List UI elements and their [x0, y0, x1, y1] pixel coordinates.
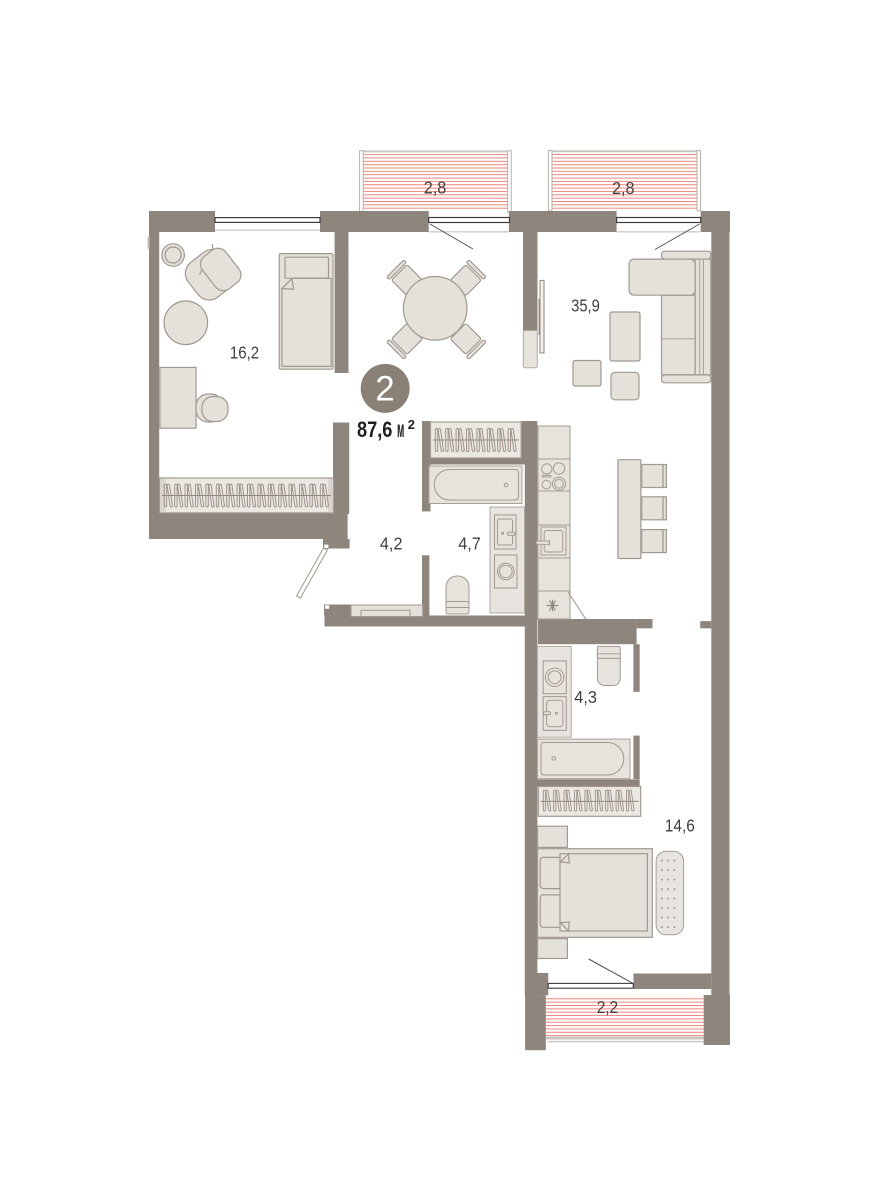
svg-text:35,9: 35,9 — [571, 295, 600, 315]
svg-text:14,6: 14,6 — [665, 816, 695, 836]
svg-text:2,8: 2,8 — [424, 177, 447, 197]
svg-text:2: 2 — [408, 417, 415, 432]
svg-text:4,7: 4,7 — [458, 534, 481, 554]
svg-text:4,2: 4,2 — [380, 534, 403, 554]
svg-text:87,6: 87,6 — [357, 417, 392, 442]
svg-text:2,2: 2,2 — [597, 997, 618, 1017]
svg-text:м: м — [397, 416, 404, 442]
svg-text:16,2: 16,2 — [230, 343, 259, 363]
svg-text:4,3: 4,3 — [574, 687, 597, 707]
svg-text:2: 2 — [375, 370, 394, 409]
svg-text:2,8: 2,8 — [612, 178, 635, 198]
